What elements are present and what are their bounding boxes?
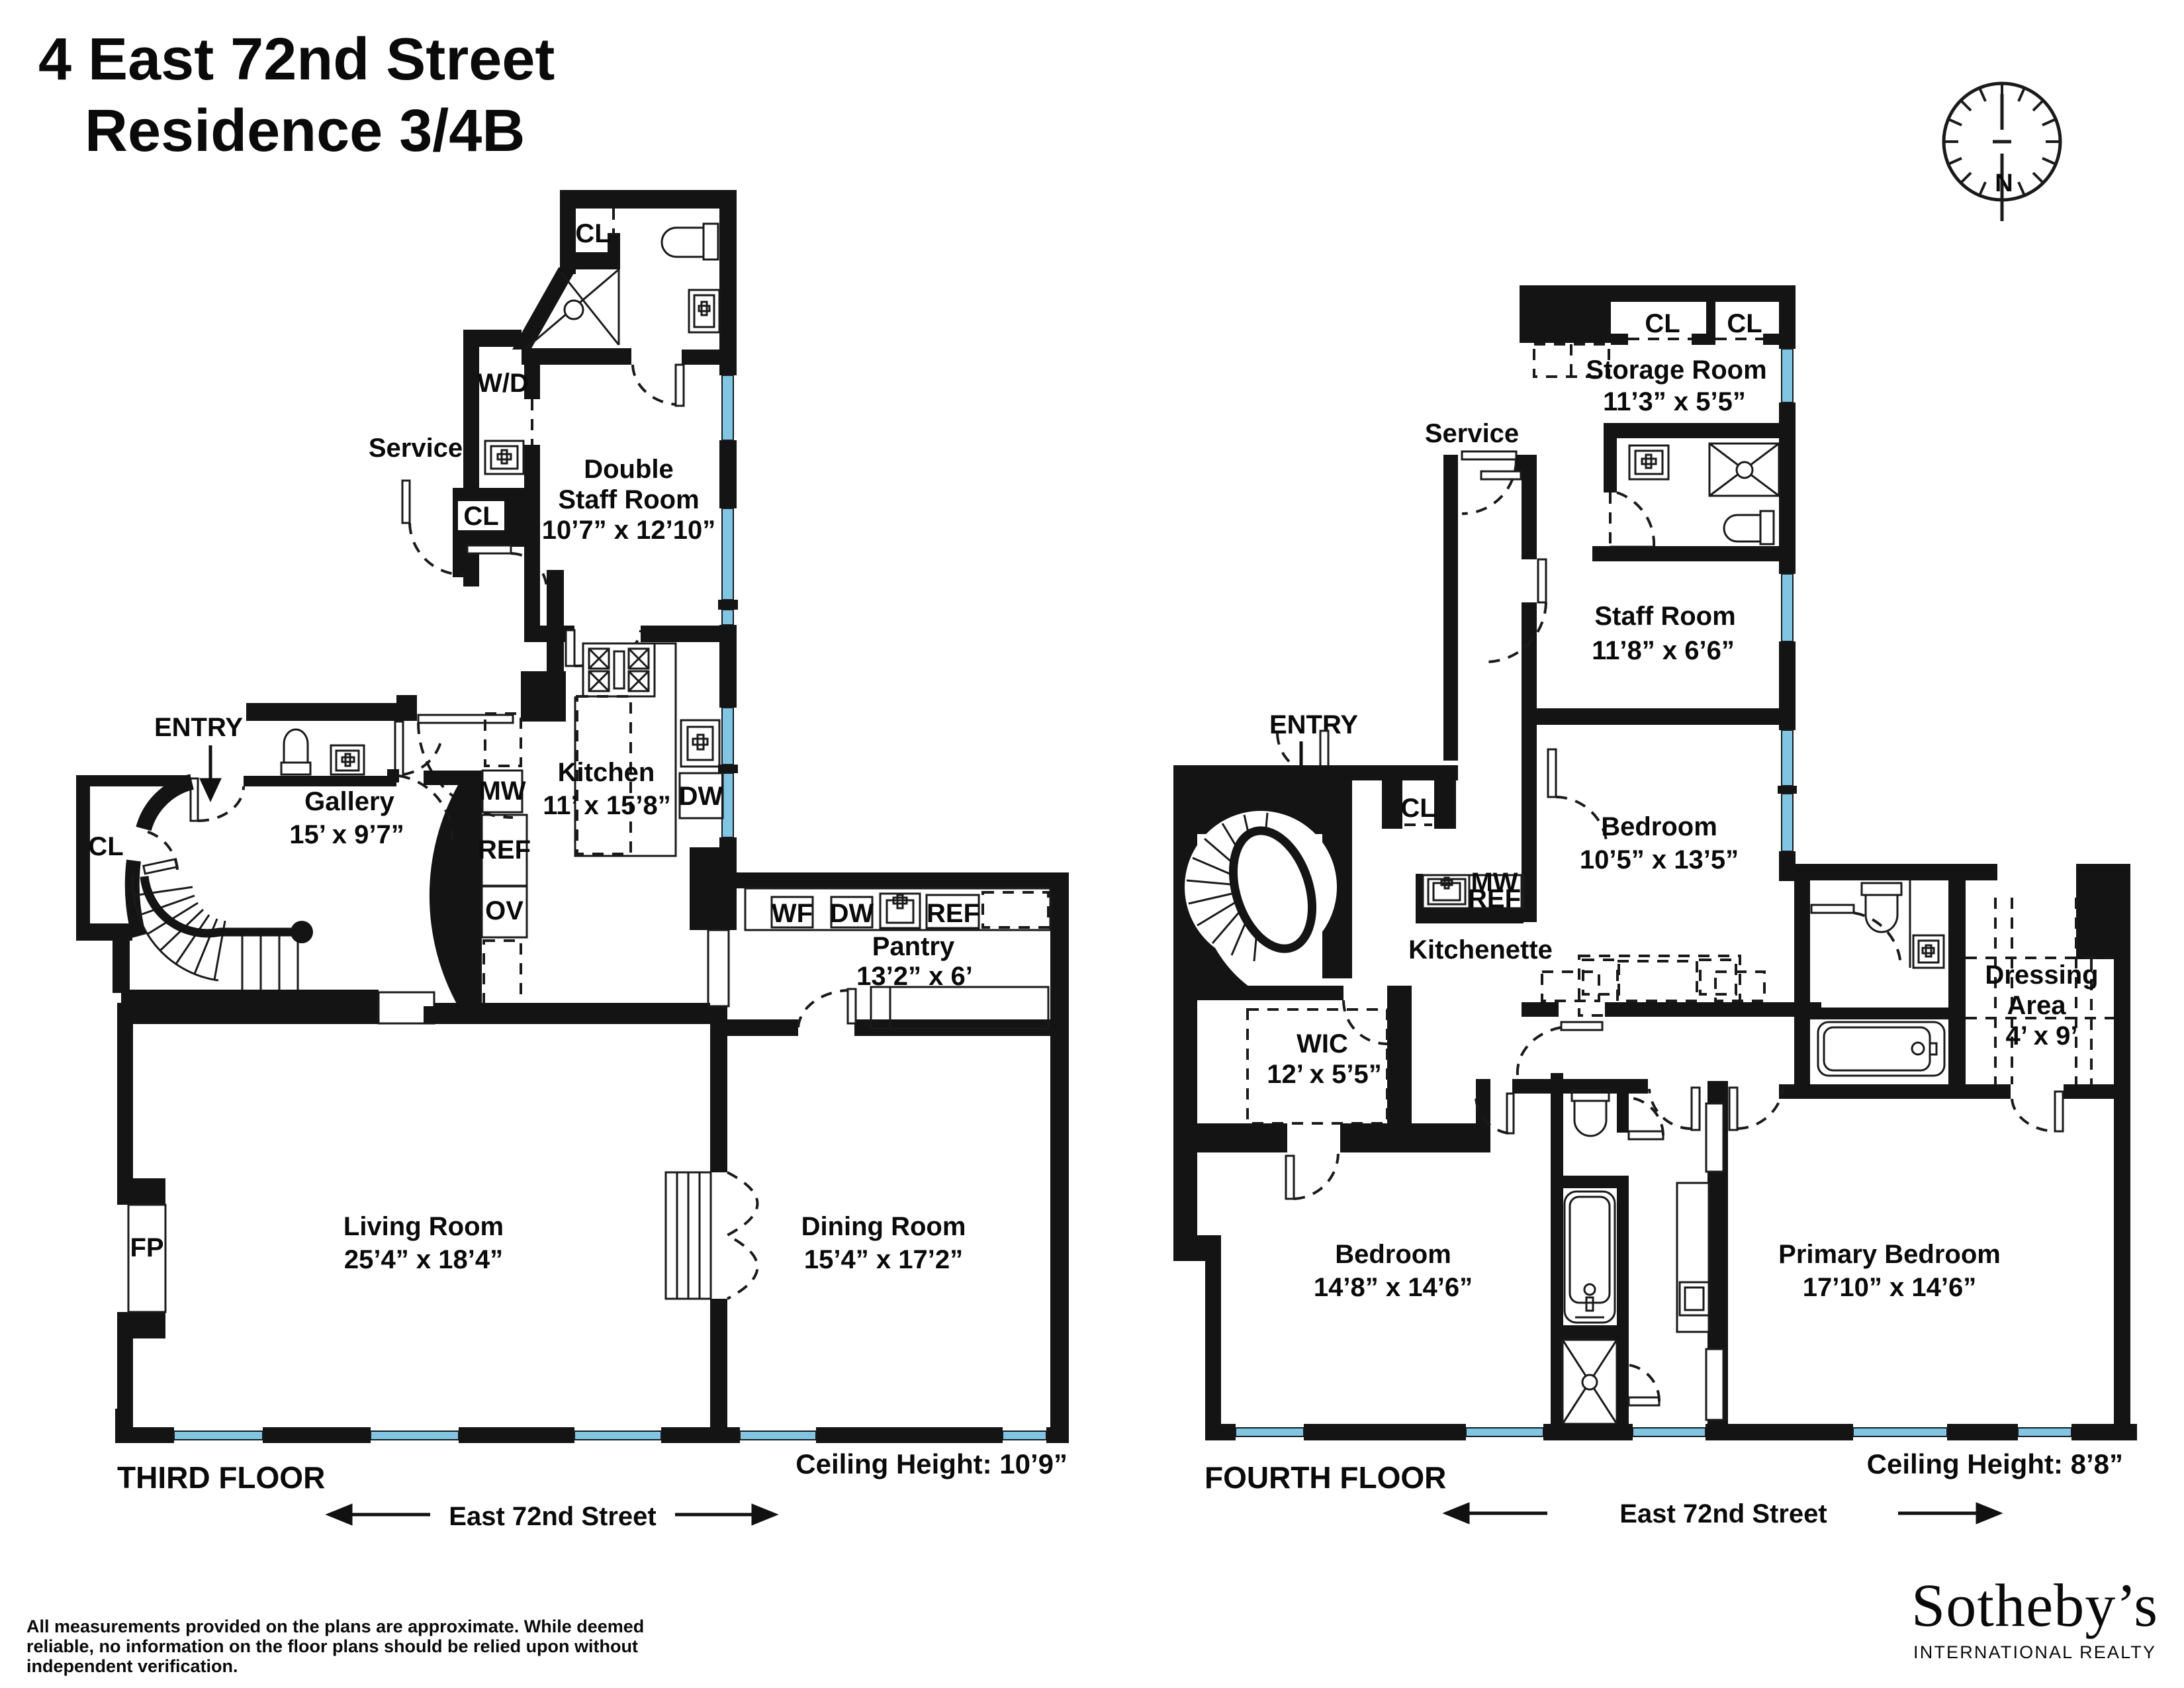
svg-text:Bedroom: Bedroom [1601,812,1717,841]
svg-text:FOURTH FLOOR: FOURTH FLOOR [1205,1460,1446,1495]
svg-text:14’8” x 14’6”: 14’8” x 14’6” [1314,1273,1473,1302]
svg-text:17’10” x 14’6”: 17’10” x 14’6” [1803,1273,1976,1302]
svg-text:CL: CL [88,832,123,861]
svg-text:CL: CL [1727,309,1762,338]
svg-text:Pantry: Pantry [872,932,955,961]
svg-text:INTERNATIONAL REALTY: INTERNATIONAL REALTY [1913,1642,2158,1662]
svg-text:REF: REF [478,835,531,865]
svg-text:Storage Room: Storage Room [1586,355,1766,385]
svg-text:25’4” x 18’4”: 25’4” x 18’4” [344,1245,503,1274]
svg-text:Ceiling Height: 10’9”: Ceiling Height: 10’9” [796,1448,1068,1479]
svg-text:N: N [1995,169,2013,197]
svg-text:11’8” x 6’6”: 11’8” x 6’6” [1592,636,1735,665]
svg-text:Living Room: Living Room [343,1212,504,1241]
svg-text:reliable, no information on th: reliable, no information on the floor pl… [26,1636,638,1656]
svg-text:Bedroom: Bedroom [1335,1240,1451,1269]
svg-text:THIRD FLOOR: THIRD FLOOR [117,1460,325,1495]
svg-text:15’4” x 17’2”: 15’4” x 17’2” [804,1245,963,1274]
svg-text:Sotheby’s: Sotheby’s [1911,1571,2158,1639]
svg-text:ENTRY: ENTRY [1269,710,1358,739]
svg-text:FP: FP [130,1233,163,1262]
svg-text:Service: Service [1425,419,1519,448]
svg-text:East 72nd Street: East 72nd Street [1619,1499,1827,1528]
svg-text:Primary Bedroom: Primary Bedroom [1778,1240,2001,1269]
svg-text:12’ x 5’5”: 12’ x 5’5” [1267,1060,1381,1089]
svg-text:Service: Service [369,434,463,463]
svg-text:DW: DW [830,899,874,928]
svg-text:ENTRY: ENTRY [154,713,243,742]
svg-text:Residence 3/4B: Residence 3/4B [85,98,525,164]
svg-text:4’ x 9’: 4’ x 9’ [2006,1021,2078,1051]
svg-text:Kitchenette: Kitchenette [1408,935,1553,964]
svg-text:CL: CL [575,219,610,248]
svg-text:REF: REF [927,899,979,928]
svg-text:Dressing: Dressing [1985,961,2098,990]
svg-text:Staff Room: Staff Room [558,485,699,514]
svg-text:CL: CL [1645,309,1680,338]
svg-text:CL: CL [463,502,498,531]
svg-text:East 72nd Street: East 72nd Street [449,1502,656,1531]
svg-text:All measurements provided on t: All measurements provided on the plans a… [26,1617,644,1636]
svg-text:W/D: W/D [477,369,529,398]
svg-text:Kitchen: Kitchen [558,758,655,787]
svg-text:CL: CL [1400,794,1435,823]
svg-text:independent verification.: independent verification. [26,1656,238,1676]
svg-text:11’ x 15’8”: 11’ x 15’8” [543,791,671,820]
svg-text:10’5” x 13’5”: 10’5” x 13’5” [1580,845,1739,874]
svg-text:Gallery: Gallery [304,787,394,816]
svg-text:Dining Room: Dining Room [801,1212,966,1241]
svg-text:10’7” x 12’10”: 10’7” x 12’10” [542,516,715,545]
svg-text:15’ x 9’7”: 15’ x 9’7” [289,820,404,849]
svg-text:Double: Double [584,455,674,484]
svg-text:11’3” x 5’5”: 11’3” x 5’5” [1603,387,1746,416]
svg-text:WF: WF [772,899,813,928]
svg-text:WIC: WIC [1297,1029,1348,1058]
svg-text:DW: DW [679,782,723,811]
svg-text:Ceiling Height: 8’8”: Ceiling Height: 8’8” [1867,1448,2123,1479]
svg-text:OV: OV [485,896,523,925]
svg-text:Area: Area [2007,991,2067,1020]
svg-text:Staff Room: Staff Room [1594,602,1735,631]
svg-text:MW: MW [478,776,525,806]
svg-text:4 East 72nd Street: 4 East 72nd Street [38,26,555,93]
